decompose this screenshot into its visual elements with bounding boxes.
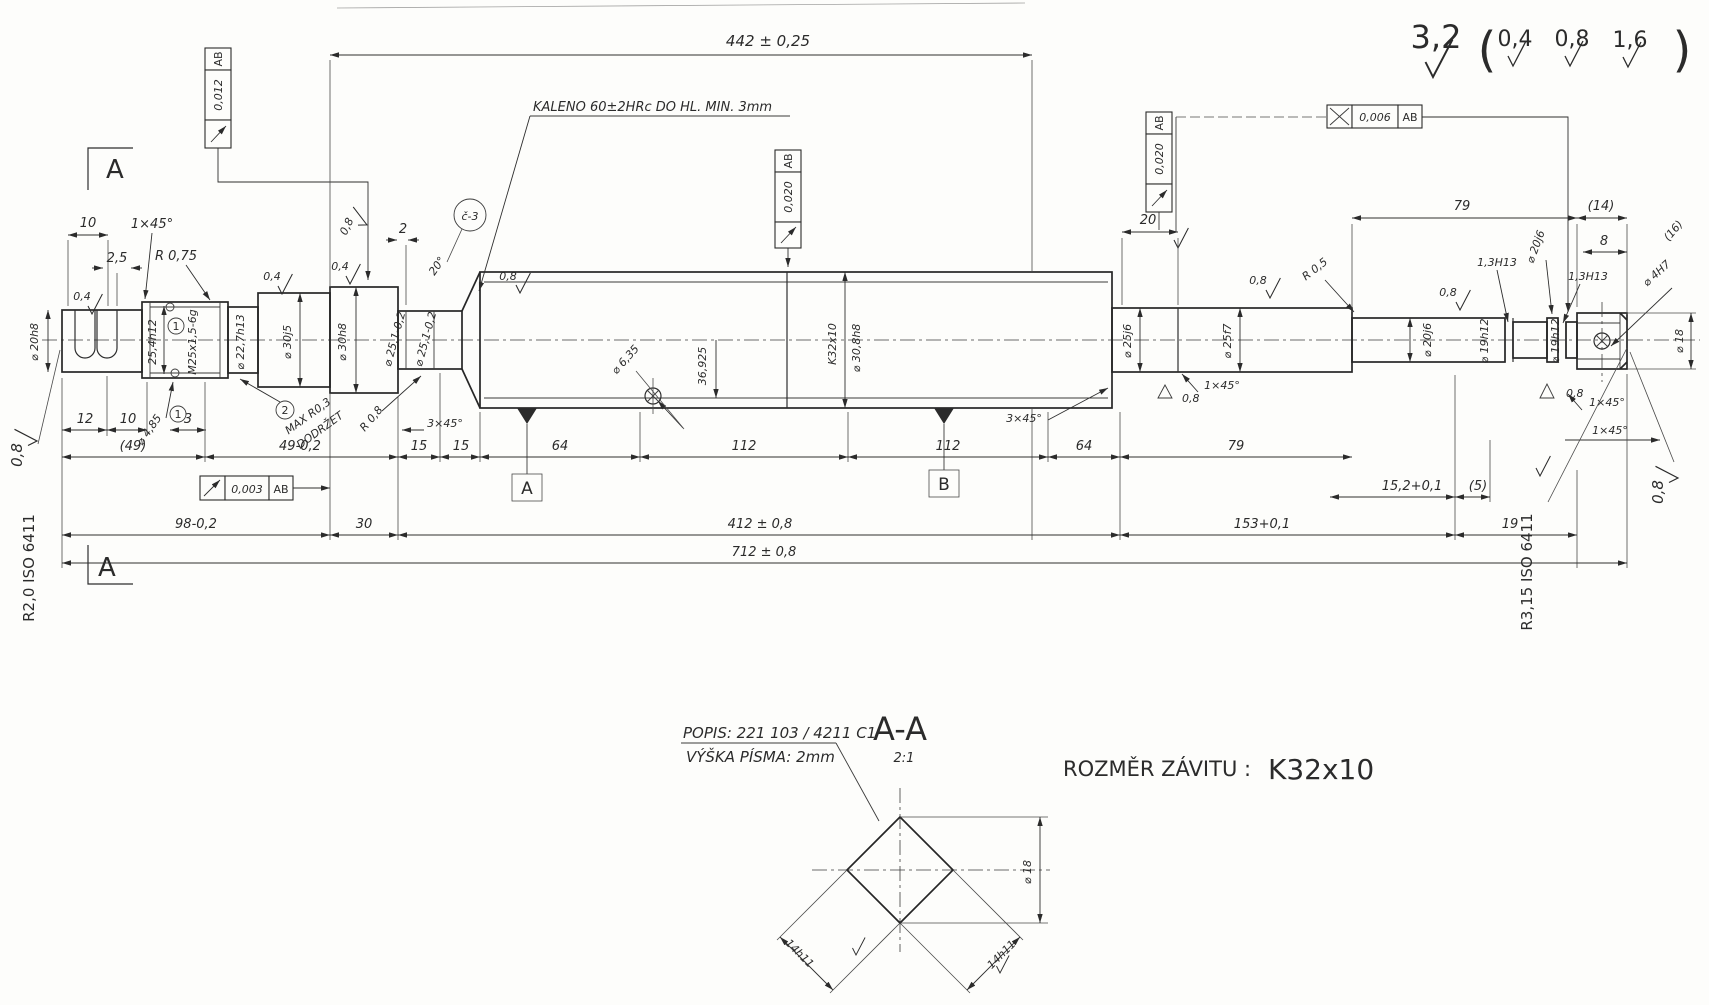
iso-6411-right-text: R3,15 ISO 6411 xyxy=(1518,513,1536,630)
dia-308h8-text: ⌀ 30,8h8 xyxy=(850,324,863,373)
dim-10b-text: 10 xyxy=(120,412,137,427)
balloon-c3: č-3 xyxy=(447,199,486,262)
dim-49-paren-text: (49) xyxy=(120,439,147,454)
dim-3-text: 3 xyxy=(184,412,192,427)
dim-14h11-left-text: 14h11 xyxy=(783,937,817,971)
fcf5-datum: AB xyxy=(273,483,288,496)
dim-64a-text: 64 xyxy=(552,439,569,454)
thread-k32-text: K32x10 xyxy=(826,323,839,365)
shaft-outline xyxy=(62,272,1627,414)
dim-442-text: 442 ± 0,25 xyxy=(726,32,810,50)
dim-152-group: 15,2+0,1 (5) xyxy=(1330,375,1490,540)
datum-a-letter: A xyxy=(521,479,533,499)
dim-r08-text: R 0,8 xyxy=(357,404,385,434)
fcf4-datum: AB xyxy=(1402,111,1417,124)
fcf-x-0006: 0,006 AB xyxy=(1176,105,1568,312)
dim-153-text: 153+0,1 xyxy=(1234,517,1290,532)
iso-6411-left-text: R2,0 ISO 6411 xyxy=(20,514,38,622)
paren-left: ( xyxy=(1478,22,1497,78)
dia-18-section-text: ⌀ 18 xyxy=(1021,860,1034,884)
rough-04-a: 0,4 xyxy=(73,290,91,303)
dia-19h12-text-1: ⌀ 19h12 xyxy=(1478,318,1491,363)
section-aa-scale: 2:1 xyxy=(894,751,915,766)
dim-36925: 36,925 xyxy=(696,340,716,398)
right-section-labels: ⌀ 25j6 ⌀ 25f7 0,8 R 0,5 0,8 1×45° 3×45° … xyxy=(1006,218,1696,504)
shaft-drawing-canvas: 3,2 ( 0,4 0,8 1,6 ) A A xyxy=(0,0,1709,1005)
dim-15a-text: 15 xyxy=(411,439,428,454)
popis-note-text: POPIS: 221 103 / 4211 C1 xyxy=(683,724,876,742)
bottom-left-dims: 12 10 3 xyxy=(62,376,206,568)
rough-08-end-face: 0,8 xyxy=(1649,480,1667,504)
dim-8: 8 xyxy=(1583,234,1627,252)
dim-16-paren-text: (16) xyxy=(1661,218,1685,244)
dia-20h8-text: ⌀ 20h8 xyxy=(28,323,41,361)
dia-251-text-2: ⌀ 25,1-0,2 xyxy=(412,310,439,368)
dim-3x45-left-text: 3×45° xyxy=(427,417,463,430)
dim-20-text: 20 xyxy=(1140,213,1157,228)
fcf3-datum: AB xyxy=(1153,115,1166,130)
thread-size-note: ROZMĚR ZÁVITU : K32x10 xyxy=(1063,753,1374,786)
thread-m25-text: M25x1,5-6g xyxy=(186,309,199,374)
roughness-alt1-value: 0,4 xyxy=(1498,27,1533,52)
balloon-1b-text: 1 xyxy=(175,408,182,421)
rough-04-b: 0,4 xyxy=(263,270,281,283)
rough-04-c: 0,4 xyxy=(331,260,349,273)
roughness-alt3-value: 1,6 xyxy=(1613,28,1648,53)
dia-19h12-text-2: ⌀ 19h12 xyxy=(1549,318,1562,363)
dim-2-5: 2,5 xyxy=(92,251,142,306)
paren-right: ) xyxy=(1673,22,1692,78)
dim-49-text: 49-0,2 xyxy=(279,439,321,454)
fcf3-value: 0,020 xyxy=(1153,143,1166,175)
rozmer-zavitu-label: ROZMĚR ZÁVITU : xyxy=(1063,756,1251,781)
dim-112a-text: 112 xyxy=(732,439,757,454)
rough-08-f7: 0,8 xyxy=(1249,274,1267,287)
dim-79-top: 79 xyxy=(1352,199,1577,312)
dim-r075-text: R 0,75 xyxy=(155,249,197,264)
dia-4h7-text: ⌀ 4H7 xyxy=(1640,258,1673,289)
dim-79-bottom-text: 79 xyxy=(1228,439,1245,454)
center-hole-note-left: 0,8 R2,0 ISO 6411 xyxy=(8,350,60,622)
surface-finish-header: 3,2 ( 0,4 0,8 1,6 ) xyxy=(1411,18,1692,78)
dia-20j6-text-1: ⌀ 20j6 xyxy=(1421,323,1434,357)
vyska-note-text: VÝŠKA PÍSMA: 2mm xyxy=(686,747,835,766)
drawing-sheet: 3,2 ( 0,4 0,8 1,6 ) A A xyxy=(0,0,1709,1005)
section-mark-letter-bottom: A xyxy=(98,553,116,583)
section-mark-letter-top: A xyxy=(106,155,124,185)
dim-12-text: 12 xyxy=(77,412,94,427)
fcf-runout-0003: 0,003 AB xyxy=(200,476,330,500)
dim-10-top-text: 10 xyxy=(80,216,97,231)
dim-64b-text: 64 xyxy=(1076,439,1093,454)
rough-08-tri-left: 0,8 xyxy=(1182,392,1200,405)
dim-15b-text: 15 xyxy=(453,439,470,454)
dim-14-text: (14) xyxy=(1588,199,1615,214)
rough-08-tri-right: 0,8 xyxy=(1566,387,1584,400)
scan-edge-line xyxy=(337,3,1025,8)
roughness-alt2-value: 0,8 xyxy=(1555,27,1590,52)
dim-36925-text: 36,925 xyxy=(696,347,709,386)
dim-19-text: 19 xyxy=(1502,517,1519,532)
dim-2-5-text: 2,5 xyxy=(107,251,128,266)
dia-25j6-text: ⌀ 25j6 xyxy=(1121,324,1134,358)
section-cut-mark-bottom: A xyxy=(88,545,133,584)
fcf2-value: 0,020 xyxy=(782,181,795,213)
fcf4-value: 0,006 xyxy=(1359,111,1391,124)
dim-3x45-left: 3×45° xyxy=(402,417,463,430)
dim-13h13-text-2: 1,3H13 xyxy=(1568,270,1608,283)
fcf1-datum: AB xyxy=(212,51,225,66)
dim-152-text: 15,2+0,1 xyxy=(1382,479,1443,494)
dim-8-text: 8 xyxy=(1600,234,1608,249)
dia-30h8-text: ⌀ 30h8 xyxy=(336,323,349,361)
dim-712-text: 712 ± 0,8 xyxy=(732,545,797,560)
dim-r08: R 0,8 xyxy=(357,376,421,434)
dim-20: 20 xyxy=(1122,213,1178,305)
dim-712: 712 ± 0,8 xyxy=(62,374,1627,568)
hardening-note: KALENO 60±2HRc DO HL. MIN. 3mm xyxy=(479,100,790,291)
fcf5-value: 0,003 xyxy=(231,483,263,496)
dim-1x45-mid-text: 1×45° xyxy=(1204,379,1240,392)
dia-18-end-text: ⌀ 18 xyxy=(1673,329,1686,353)
rough-08-collar: 0,8 xyxy=(337,216,356,237)
dim-5-paren-text: (5) xyxy=(1469,479,1487,494)
datum-b-letter: B xyxy=(938,475,950,495)
fcf-runout-0020-mid: AB 0,020 xyxy=(775,150,801,267)
datum-a: A xyxy=(512,408,542,501)
rough-08-left-face: 0,8 xyxy=(8,443,26,467)
dim-r075: R 0,75 xyxy=(155,249,210,300)
dim-13h13-text-1: 1,3H13 xyxy=(1477,256,1517,269)
hole-635-callout: ⌀ 6,35 xyxy=(609,342,684,429)
balloon-2-text: 2 xyxy=(282,404,289,417)
dim-2-text: 2 xyxy=(399,222,407,237)
fcf2-datum: AB xyxy=(782,153,795,168)
dim-14-paren: (14) xyxy=(1577,199,1627,315)
fcf-runout-0012: AB 0,012 xyxy=(205,48,368,280)
dim-1x45-end2-text: 1×45° xyxy=(1592,424,1628,437)
dim-r05-text: R 0,5 xyxy=(1300,255,1331,283)
dim-14h11-right-text: 14h11 xyxy=(985,938,1019,972)
section-aa-title: A-A xyxy=(873,710,927,748)
kaleno-note-text: KALENO 60±2HRc DO HL. MIN. 3mm xyxy=(533,100,772,115)
balloon-1a-text: 1 xyxy=(173,320,180,333)
dim-1x45-end1-text: 1×45° xyxy=(1589,396,1625,409)
section-aa-detail: POPIS: 221 103 / 4211 C1 VÝŠKA PÍSMA: 2m… xyxy=(681,710,1050,993)
k32-callout: K32x10 ⌀ 30,8h8 xyxy=(826,272,863,408)
dim-79-top-text: 79 xyxy=(1454,199,1471,214)
dia-25f7-text: ⌀ 25f7 xyxy=(1221,324,1234,359)
dim-412-text: 412 ± 0,8 xyxy=(728,517,793,532)
dia-30j5-text: ⌀ 30j5 xyxy=(281,325,294,359)
rough-08-20j6: 0,8 xyxy=(1439,286,1457,299)
dia-251-text-1: ⌀ 25,1-0,2 xyxy=(381,310,408,368)
dim-98-text: 98-0,2 xyxy=(175,517,217,532)
dim-3x45-right-text: 3×45° xyxy=(1006,412,1042,425)
balloon-c3-text: č-3 xyxy=(461,210,478,223)
dim-30-text: 30 xyxy=(356,517,373,532)
dim-1x45-left-text: 1×45° xyxy=(131,217,173,232)
dim-2-groove: 2 xyxy=(386,222,419,305)
section-cut-mark-top: A xyxy=(88,148,133,190)
dia-227h13-text: ⌀ 22,7h13 xyxy=(234,314,247,370)
roughness-main-value: 3,2 xyxy=(1411,18,1462,56)
dim-254h12-text: 25,4h12 xyxy=(146,319,159,364)
fcf1-value: 0,012 xyxy=(212,79,225,111)
rough-08-long: 0,8 xyxy=(499,270,517,283)
dia-20j6-text-2: ⌀ 20j6 xyxy=(1524,229,1548,266)
angle-20-text: 20° xyxy=(426,254,448,277)
rozmer-zavitu-value: K32x10 xyxy=(1268,753,1374,786)
dim-112b-text: 112 xyxy=(936,439,961,454)
